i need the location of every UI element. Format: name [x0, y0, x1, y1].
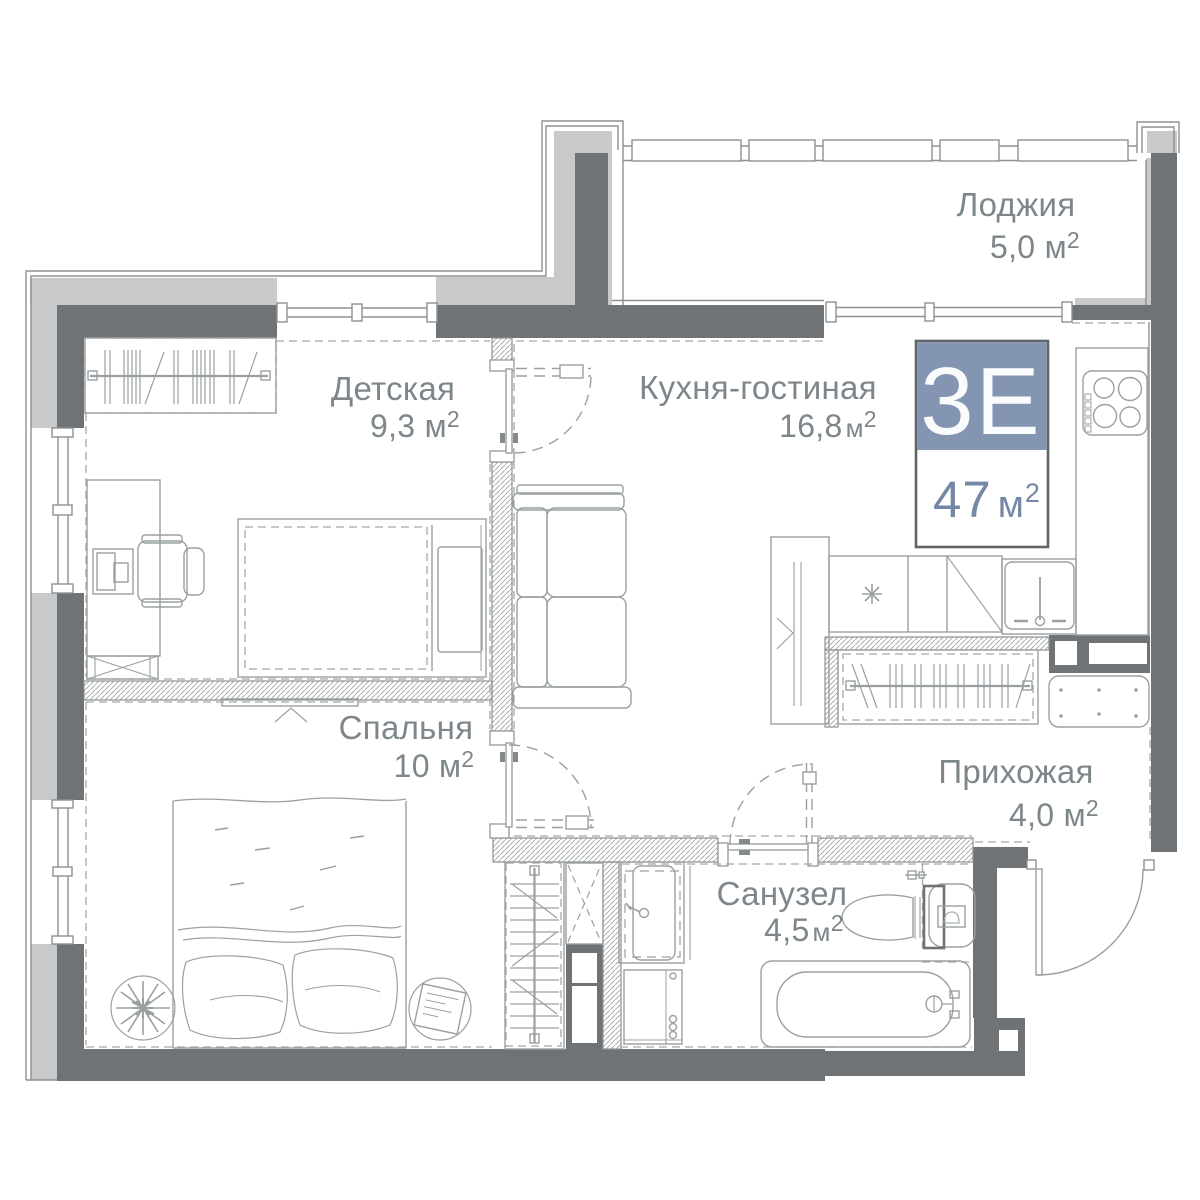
svg-text:Спальня: Спальня: [339, 709, 474, 746]
svg-text:Детская: Детская: [331, 370, 455, 407]
svg-text:4,0 м2: 4,0 м2: [1009, 795, 1099, 833]
svg-text:Прихожая: Прихожая: [938, 753, 1093, 790]
svg-text:5,0 м2: 5,0 м2: [990, 227, 1080, 265]
svg-text:3Е: 3Е: [920, 348, 1041, 455]
svg-text:47м2: 47м2: [933, 471, 1041, 528]
svg-text:Кухня-гостиная: Кухня-гостиная: [639, 369, 877, 406]
svg-text:Лоджия: Лоджия: [957, 186, 1076, 223]
svg-text:Санузел: Санузел: [717, 875, 848, 912]
svg-text:9,3 м2: 9,3 м2: [370, 406, 460, 444]
